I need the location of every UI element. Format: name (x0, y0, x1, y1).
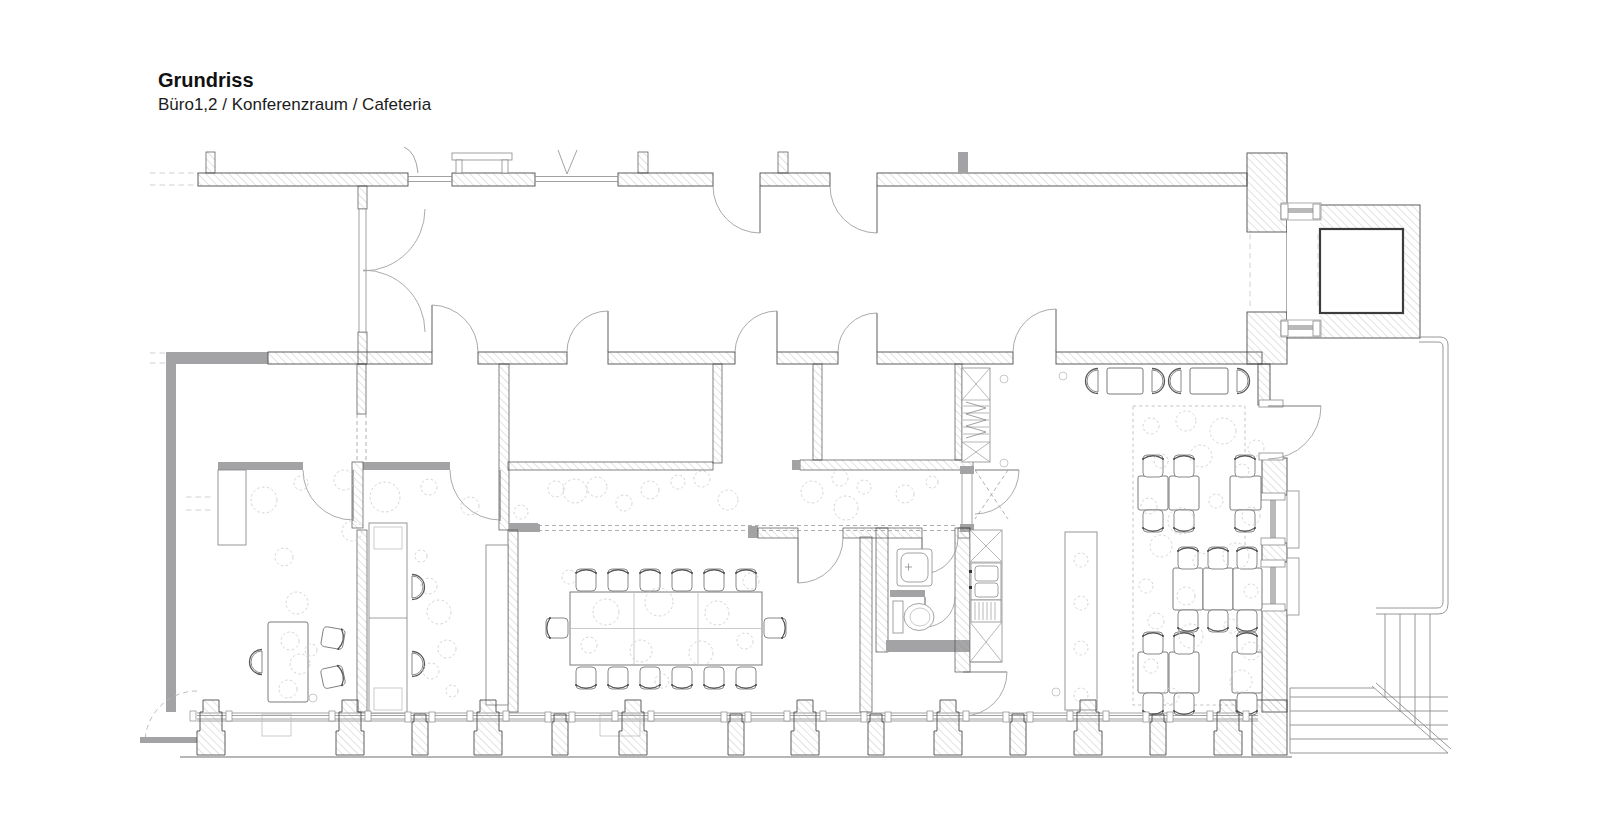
side-desk (486, 545, 508, 705)
cafeteria-window-1 (1261, 491, 1299, 548)
buero2-furniture (369, 523, 508, 713)
facade-pilasters (190, 700, 1249, 755)
floor-plan-page: Grundriss Büro1,2 / Konferenzraum / Cafe… (0, 0, 1600, 835)
cafeteria-window-2 (1261, 558, 1299, 615)
conference-room (546, 569, 786, 736)
bench (452, 153, 512, 173)
witness-lines (150, 173, 214, 510)
annex-window-top (1281, 203, 1321, 220)
kitchen-sink (969, 563, 1001, 600)
sideboard (218, 470, 246, 545)
double-door (358, 186, 425, 364)
office-table (268, 622, 308, 702)
radiator (262, 714, 291, 736)
kitchen-units (969, 530, 1002, 662)
washbasin (897, 549, 932, 586)
annex-window-bottom (1281, 320, 1321, 337)
exterior-stairs (1290, 337, 1451, 753)
toilet (893, 601, 934, 633)
cafeteria (1065, 368, 1262, 715)
floor-plan-svg (0, 0, 1600, 835)
cafeteria-exit-door (1259, 400, 1321, 460)
bar-counter (1065, 532, 1097, 710)
dishwasher (971, 600, 1001, 622)
